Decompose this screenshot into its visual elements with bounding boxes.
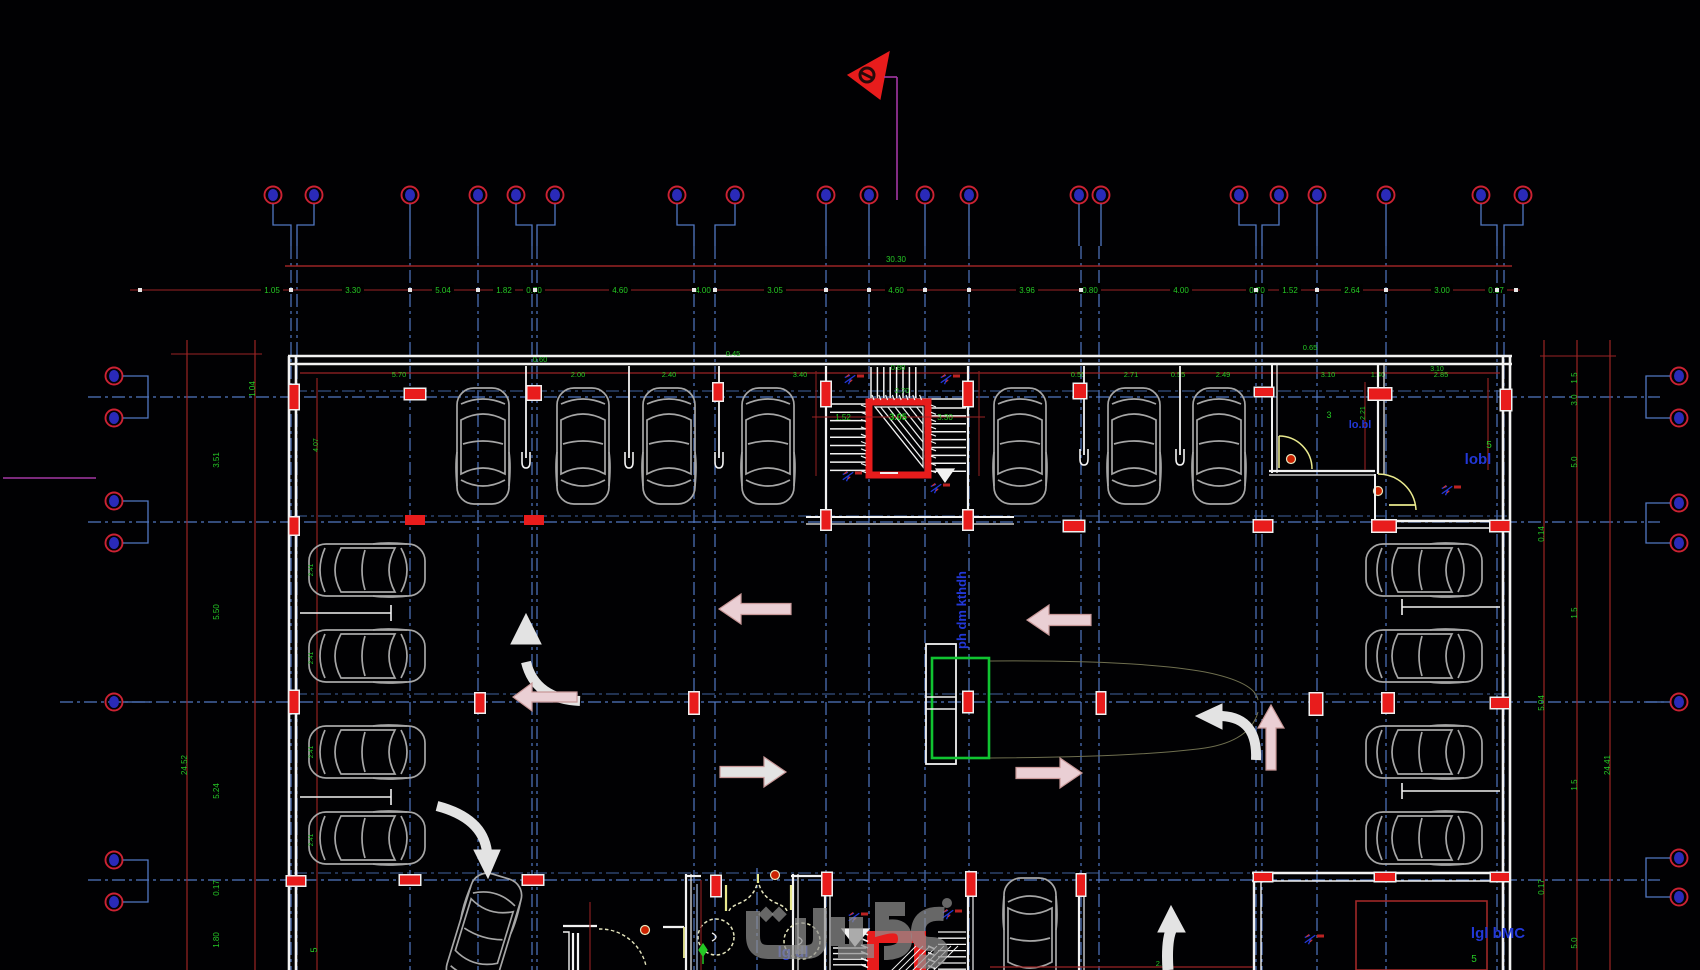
svg-text:5.04: 5.04 [435,286,451,295]
svg-text:3.00: 3.00 [1434,286,1450,295]
svg-text:0.45: 0.45 [726,349,741,358]
svg-text:2.40: 2.40 [662,370,677,379]
svg-text:3.51: 3.51 [212,452,221,468]
svg-text:5: 5 [1486,440,1492,451]
svg-text:5.04: 5.04 [1537,695,1546,711]
svg-text:2.00: 2.00 [571,370,586,379]
svg-text:2.41: 2.41 [308,833,315,846]
svg-text:5.70: 5.70 [392,370,407,379]
svg-text:5: 5 [1471,954,1477,965]
svg-text:2.21: 2.21 [1360,406,1367,420]
svg-text:2.41: 2.41 [308,745,315,758]
svg-text:0.55: 0.55 [1171,370,1186,379]
svg-text:3.40: 3.40 [793,370,808,379]
svg-text:1.5: 1.5 [1570,372,1579,384]
svg-text:3.30: 3.30 [345,286,361,295]
svg-text:3.30: 3.30 [937,413,953,422]
svg-text:4.00: 4.00 [1173,286,1189,295]
svg-text:0.14: 0.14 [1537,526,1546,542]
svg-text:0.17: 0.17 [1537,879,1546,895]
svg-text:0.80: 0.80 [891,363,906,372]
svg-text:4.00: 4.00 [695,286,711,295]
svg-text:4.07: 4.07 [313,438,320,452]
svg-text:5: 5 [309,947,319,952]
svg-text:1.80: 1.80 [212,932,221,948]
svg-text:5.0: 5.0 [1570,937,1579,949]
svg-text:1.05: 1.05 [264,286,280,295]
svg-text:1.5: 1.5 [1570,779,1579,791]
svg-text:2.64: 2.64 [1344,286,1360,295]
svg-text:1.52: 1.52 [835,413,851,422]
svg-text:24.41: 24.41 [1603,754,1612,775]
svg-text:2.49: 2.49 [1216,370,1231,379]
svg-text:2.70: 2.70 [895,386,910,395]
svg-text:4.60: 4.60 [888,286,904,295]
svg-text:3.05: 3.05 [767,286,783,295]
svg-text:lo.bl: lo.bl [1349,419,1372,431]
svg-text:2.41: 2.41 [308,651,315,664]
svg-text:3: 3 [1326,410,1331,420]
svg-text:1.82: 1.82 [496,286,512,295]
svg-text:lgl bMC: lgl bMC [1471,925,1525,942]
svg-text:lobl: lobl [1465,451,1492,468]
svg-text:30.30: 30.30 [886,255,907,264]
svg-text:0.60: 0.60 [533,355,548,364]
svg-text:2.71: 2.71 [1124,370,1139,379]
svg-text:0.80: 0.80 [1082,286,1098,295]
svg-text:3.10: 3.10 [1430,366,1444,373]
svg-text:0.17: 0.17 [212,880,221,896]
svg-text:4.60: 4.60 [612,286,628,295]
svg-text:3.10: 3.10 [1321,370,1336,379]
svg-text:5.0: 5.0 [1570,456,1579,468]
svg-text:ph dm kthdh: ph dm kthdh [954,571,969,649]
svg-text:3.0: 3.0 [1570,394,1579,406]
svg-text:0.65: 0.65 [1303,343,1318,352]
svg-text:5.50: 5.50 [212,604,221,620]
svg-text:5.24: 5.24 [212,783,221,799]
svg-text:1.52: 1.52 [1282,286,1298,295]
svg-text:1.5: 1.5 [1570,607,1579,619]
svg-text:3.05: 3.05 [889,412,907,422]
svg-text:1.04: 1.04 [248,381,257,397]
svg-text:24.52: 24.52 [180,754,189,775]
svg-text:3.96: 3.96 [1019,286,1035,295]
svg-text:2.41: 2.41 [308,563,315,576]
